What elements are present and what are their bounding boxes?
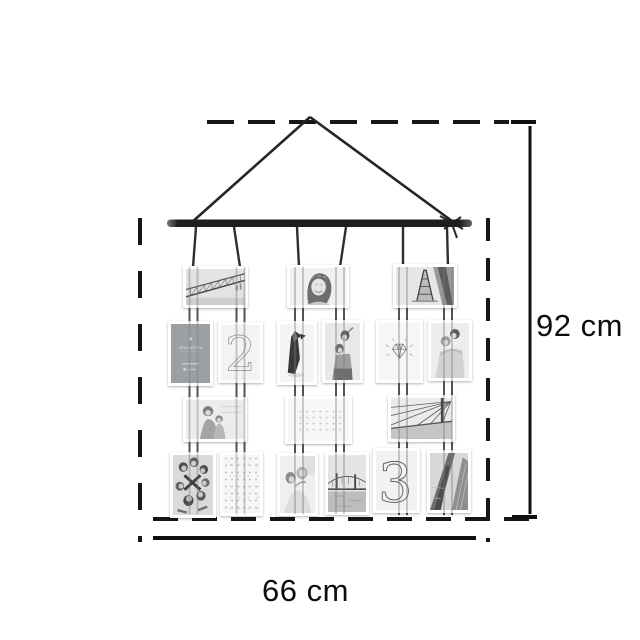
photo-truss-bridge xyxy=(183,266,248,308)
photo-eiffel-tower xyxy=(393,264,457,308)
brand-card-icon xyxy=(183,368,186,371)
plus-row-2: + + + + + + + xyxy=(299,415,343,421)
photo-bridge-cables xyxy=(388,395,455,442)
brand-card-image: atmosphera xyxy=(171,324,210,383)
bar-to-photo-strings xyxy=(193,227,448,267)
plus-row-1: + + + + + + + xyxy=(299,409,343,415)
numeral-2-image: 2 xyxy=(221,325,260,380)
plus-row-4: + + + + + + + xyxy=(299,427,343,433)
numeral-3-image: 3 xyxy=(376,451,417,510)
photo-two-women xyxy=(322,320,363,383)
card-plus-pattern: + + + + + + + + + + + + + + + + + + + + … xyxy=(285,396,352,444)
card-speckle xyxy=(220,452,263,516)
dimension-diagram: atmosphera 2 xyxy=(0,0,640,640)
photo-family xyxy=(183,397,247,442)
bridge-cables-image xyxy=(391,398,452,439)
photo-bridge-towers xyxy=(325,452,369,515)
card-diamond-sketch xyxy=(376,320,423,383)
speckle-image xyxy=(223,455,260,513)
hanging-string-right xyxy=(310,117,452,221)
photo-smiling-woman xyxy=(287,265,349,308)
friends-group-image xyxy=(173,455,213,515)
card-numeral-2: 2 xyxy=(218,322,263,383)
two-women-image xyxy=(325,323,360,380)
width-dimension-label: 66 cm xyxy=(262,573,349,609)
bridge-towers-image xyxy=(328,455,366,512)
diamond-sketch-image xyxy=(379,323,420,380)
numeral-2-text: 2 xyxy=(225,328,255,380)
brand-card-text: atmosphera xyxy=(179,345,203,350)
photo-couple xyxy=(277,453,318,516)
numeral-3-text: 3 xyxy=(378,452,412,510)
couple-image xyxy=(280,456,315,513)
buildings-image xyxy=(430,453,468,510)
card-origami-penguin xyxy=(277,321,317,385)
plus-pattern-image: + + + + + + + + + + + + + + + + + + + + … xyxy=(288,399,349,441)
origami-penguin-image xyxy=(280,324,314,382)
card-brand-atmosphera: atmosphera xyxy=(168,321,213,386)
wooden-bar xyxy=(167,220,472,228)
smiling-woman-image xyxy=(290,268,346,305)
photo-buildings xyxy=(427,450,471,513)
card-numeral-3: 3 xyxy=(373,448,420,513)
string-knot xyxy=(440,216,463,238)
plus-row-3: + + + + + + + xyxy=(299,421,343,427)
height-dimension-label: 92 cm xyxy=(536,308,623,344)
family-image xyxy=(186,400,244,439)
eiffel-tower-image xyxy=(396,267,454,305)
hanging-string-left xyxy=(191,117,310,223)
truss-bridge-image xyxy=(186,269,245,305)
hugging-couple-image xyxy=(431,323,469,378)
photo-hugging-couple xyxy=(428,320,472,381)
photo-friends-group xyxy=(170,452,216,518)
